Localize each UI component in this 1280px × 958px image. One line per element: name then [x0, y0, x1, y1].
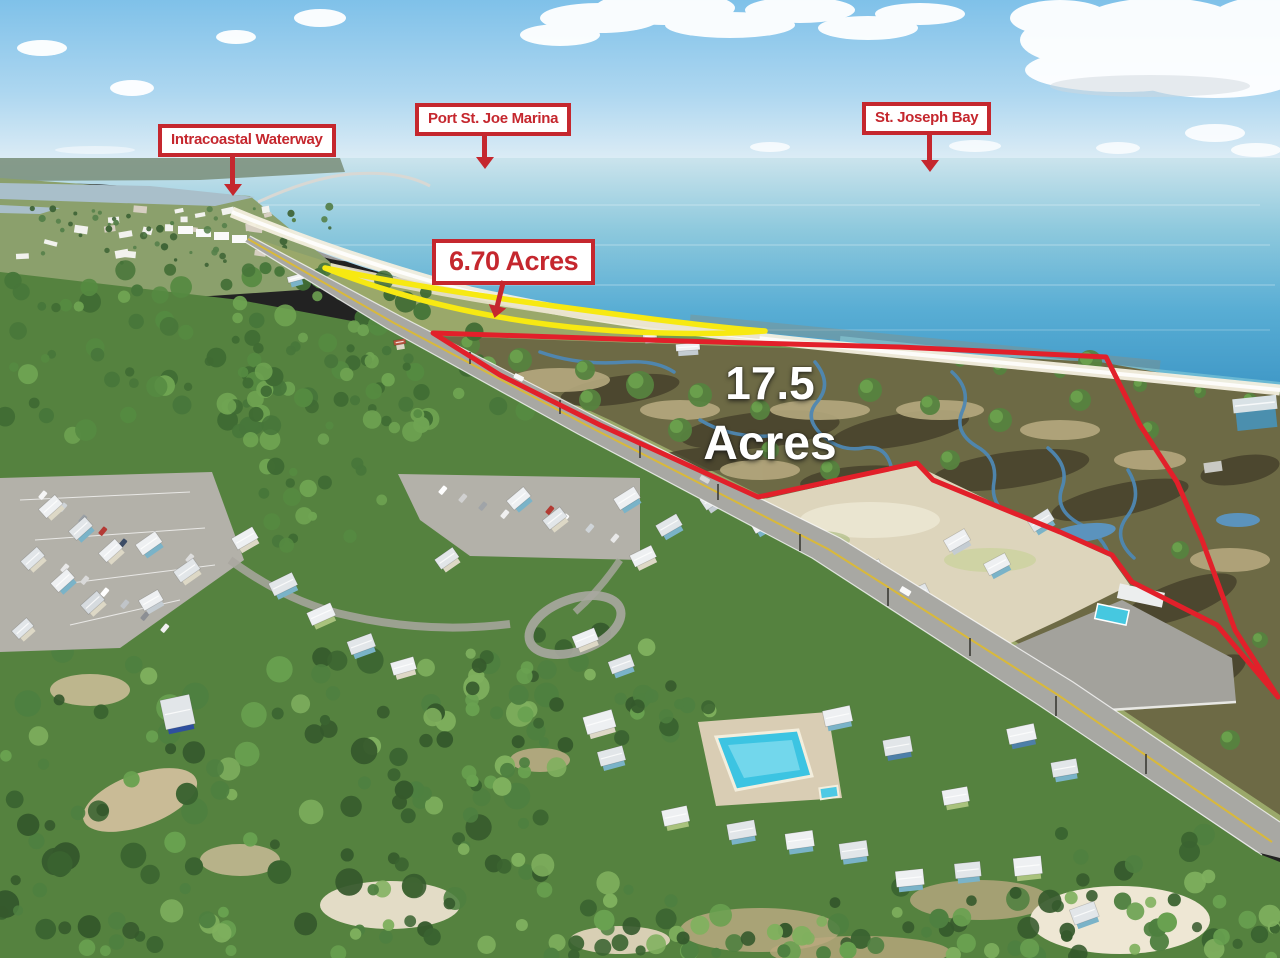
tree — [223, 259, 227, 263]
tree — [816, 916, 827, 927]
tree — [318, 476, 332, 490]
tree — [444, 898, 456, 910]
tree — [272, 708, 284, 720]
tree — [184, 383, 192, 391]
tree — [126, 214, 131, 219]
tree — [466, 649, 476, 659]
tree — [957, 934, 976, 953]
tree — [261, 415, 281, 435]
tree — [547, 757, 567, 777]
tree — [0, 750, 12, 762]
tree — [291, 694, 310, 713]
tree — [211, 249, 217, 255]
tree — [123, 771, 139, 787]
house — [839, 840, 870, 865]
tree — [366, 383, 382, 399]
tree — [664, 894, 677, 907]
tree — [312, 291, 322, 301]
tree — [232, 313, 243, 324]
tree — [343, 530, 356, 543]
tree — [118, 291, 130, 303]
tree — [465, 693, 479, 707]
tree — [509, 685, 529, 705]
tree — [376, 495, 387, 506]
tree — [1251, 926, 1268, 943]
tree — [368, 884, 379, 895]
tree — [212, 923, 231, 942]
tree — [350, 928, 361, 939]
tree — [108, 912, 126, 930]
tree — [423, 708, 441, 726]
tree — [340, 796, 361, 817]
tree — [266, 656, 292, 682]
tree — [335, 868, 363, 896]
tree — [636, 945, 646, 955]
tree — [453, 388, 464, 399]
tree — [1192, 922, 1202, 932]
tree — [267, 458, 284, 475]
tree — [516, 919, 528, 931]
tree — [58, 921, 71, 934]
tree — [113, 220, 119, 226]
tree — [596, 871, 619, 894]
tree — [953, 908, 972, 927]
tree — [1233, 939, 1243, 949]
tree — [287, 210, 294, 217]
house — [954, 861, 982, 884]
tree — [656, 908, 677, 929]
tree — [263, 513, 280, 530]
tree — [381, 373, 394, 386]
tree — [18, 364, 38, 384]
tree — [164, 264, 176, 276]
tree — [1055, 827, 1068, 840]
tree — [1157, 912, 1177, 932]
tree — [398, 397, 413, 412]
tree — [674, 699, 684, 709]
tree — [828, 913, 849, 934]
tree — [437, 731, 454, 748]
tree — [521, 661, 534, 674]
tree — [140, 865, 159, 884]
tree — [235, 742, 260, 767]
tree — [170, 221, 174, 225]
tree — [1145, 897, 1156, 908]
tree — [383, 919, 395, 931]
condo-building — [178, 226, 193, 234]
tree — [1239, 911, 1257, 929]
tree — [173, 396, 192, 415]
tree — [30, 206, 35, 211]
tree — [670, 420, 683, 433]
tree — [204, 226, 212, 234]
tree — [403, 353, 413, 363]
tree — [100, 945, 111, 956]
tree — [614, 730, 629, 745]
tree — [49, 205, 56, 212]
tree — [395, 781, 414, 800]
tree — [1125, 855, 1143, 873]
tree — [615, 693, 627, 705]
tree — [183, 741, 205, 763]
tree — [226, 945, 237, 956]
tree — [990, 410, 1003, 423]
tree — [14, 690, 41, 717]
tree — [623, 885, 633, 895]
tree — [152, 286, 169, 303]
tree — [205, 263, 209, 267]
tree — [161, 243, 168, 250]
tree — [458, 843, 470, 855]
tree — [1071, 391, 1083, 403]
tree — [701, 700, 715, 714]
tree — [388, 768, 401, 781]
tree — [389, 422, 400, 433]
tree — [500, 763, 515, 778]
tree — [623, 917, 641, 935]
tree — [325, 203, 333, 211]
tree — [96, 804, 108, 816]
tree — [289, 468, 297, 476]
tree — [104, 372, 120, 388]
tree — [108, 223, 111, 226]
tree — [645, 689, 659, 703]
tree — [109, 934, 124, 949]
spa — [819, 786, 838, 799]
tree — [325, 422, 333, 430]
tree — [902, 921, 914, 933]
tree — [133, 246, 137, 250]
house — [1013, 856, 1043, 882]
tree — [472, 658, 487, 673]
tree — [518, 706, 534, 722]
tree — [125, 367, 134, 376]
tree — [29, 398, 40, 409]
tree — [318, 433, 329, 444]
tree — [176, 783, 198, 805]
tree — [174, 258, 177, 261]
tree — [300, 480, 317, 497]
tree — [294, 388, 313, 407]
tree — [39, 215, 46, 222]
tree — [146, 936, 163, 953]
tree — [404, 915, 416, 927]
tree — [558, 737, 574, 753]
tree — [241, 702, 267, 728]
tree — [1010, 887, 1022, 899]
tree — [1259, 905, 1280, 927]
tree — [1222, 732, 1233, 743]
tree — [91, 348, 105, 362]
tree — [628, 373, 643, 388]
tree — [146, 226, 151, 231]
tree — [777, 944, 790, 957]
tree — [966, 895, 977, 906]
tree — [219, 253, 226, 260]
tree — [120, 407, 136, 423]
tree — [74, 301, 84, 311]
label-6-70-acres: 6.70 Acres — [432, 239, 595, 285]
tree — [39, 408, 54, 423]
tree — [243, 432, 258, 447]
tree — [677, 932, 690, 945]
tree — [327, 651, 347, 671]
tree — [581, 391, 593, 403]
tree — [260, 262, 272, 274]
tree — [665, 680, 676, 691]
tree — [37, 302, 46, 311]
tree — [533, 718, 544, 729]
town-building — [16, 253, 29, 259]
tree — [792, 926, 812, 946]
tree — [294, 912, 317, 935]
tree — [54, 694, 65, 705]
tree — [106, 226, 113, 233]
condo-building — [232, 235, 247, 243]
tree — [243, 378, 254, 389]
tree — [403, 363, 411, 371]
tree — [253, 343, 264, 354]
acreage-unit: Acres — [700, 420, 840, 468]
tree — [283, 488, 301, 506]
tree — [466, 682, 480, 696]
tree — [413, 409, 422, 418]
tree — [631, 699, 645, 713]
tree — [1060, 923, 1076, 939]
tree — [646, 934, 666, 954]
town-building — [165, 224, 173, 231]
tree — [1129, 944, 1140, 955]
tree — [164, 832, 185, 853]
arrow-icon — [482, 135, 487, 158]
tree — [60, 228, 65, 233]
tree — [347, 344, 355, 352]
tree — [490, 706, 503, 719]
tree — [690, 916, 709, 935]
tree — [129, 378, 139, 388]
tree — [580, 900, 597, 917]
tree — [33, 883, 48, 898]
tree — [603, 894, 617, 908]
tree — [518, 818, 529, 829]
tree — [1195, 387, 1202, 394]
tree — [267, 860, 291, 884]
tree — [41, 354, 50, 363]
tree — [218, 907, 229, 918]
tree — [146, 376, 167, 397]
tree — [255, 363, 273, 381]
tree — [725, 934, 743, 952]
tree — [146, 730, 158, 742]
town-building — [133, 205, 147, 213]
tree — [1086, 890, 1098, 902]
tree — [519, 757, 530, 768]
tree — [45, 820, 56, 831]
tree — [340, 368, 353, 381]
tree — [249, 407, 264, 422]
tree — [81, 279, 98, 296]
tree — [238, 367, 249, 378]
tree — [178, 325, 193, 340]
tree — [185, 857, 203, 875]
tree — [35, 919, 56, 940]
tree — [357, 324, 369, 336]
tree — [942, 452, 953, 463]
tree — [922, 397, 933, 408]
tree — [211, 781, 230, 800]
tree — [423, 928, 440, 945]
tree — [709, 904, 732, 927]
tree — [13, 283, 30, 300]
tree — [1020, 939, 1039, 958]
tree — [51, 303, 60, 312]
label-port-st-joe-marina: Port St. Joe Marina — [415, 103, 571, 136]
tree — [577, 362, 588, 373]
tree — [206, 759, 224, 777]
tree — [1172, 542, 1182, 552]
tree — [401, 808, 416, 823]
tree — [13, 905, 23, 915]
tree — [75, 419, 97, 441]
tree — [511, 853, 525, 867]
tree — [199, 911, 216, 928]
house — [676, 343, 701, 357]
tree — [94, 704, 109, 719]
tree — [160, 317, 179, 336]
arrow-icon — [230, 157, 235, 185]
tree — [318, 334, 337, 353]
tree — [1038, 890, 1061, 913]
tree — [299, 800, 324, 825]
tree — [249, 313, 265, 329]
tree — [29, 726, 49, 746]
tree — [419, 734, 432, 747]
tree — [78, 915, 101, 938]
tree — [274, 304, 296, 326]
tree — [921, 927, 932, 938]
arrow-icon — [224, 184, 242, 196]
tree — [1213, 895, 1227, 909]
tree — [311, 664, 330, 683]
tree — [6, 791, 24, 809]
tree — [341, 848, 354, 861]
tree — [259, 488, 270, 499]
tree — [253, 207, 256, 210]
tree — [351, 458, 363, 470]
tree — [129, 314, 144, 329]
label-17-5-acres: 17.5 Acres — [700, 360, 840, 468]
tree — [741, 931, 756, 946]
tree — [537, 660, 556, 679]
tree — [584, 669, 596, 681]
tree — [1127, 902, 1145, 920]
tree — [531, 854, 554, 877]
tree — [156, 225, 164, 233]
house — [785, 830, 816, 855]
arrow-icon — [476, 157, 494, 169]
tree — [160, 899, 183, 922]
tree — [170, 276, 192, 298]
tree — [351, 738, 378, 765]
tree — [92, 215, 98, 221]
tree — [389, 748, 407, 766]
tree — [38, 759, 49, 770]
tree — [350, 395, 360, 405]
tree — [320, 715, 330, 725]
tree — [120, 843, 146, 869]
tree — [292, 218, 296, 222]
tree — [892, 907, 903, 918]
tree — [711, 948, 721, 958]
tree — [549, 697, 564, 712]
tree — [379, 930, 393, 944]
tree — [418, 787, 432, 801]
tree — [295, 507, 312, 524]
tree — [98, 211, 102, 215]
tree — [125, 656, 143, 674]
tree — [533, 810, 549, 826]
tree — [489, 397, 507, 415]
tree — [1076, 873, 1089, 886]
tree — [493, 777, 512, 796]
tree — [214, 216, 218, 220]
tree — [68, 222, 73, 227]
tree — [1253, 633, 1262, 642]
tree — [207, 206, 213, 212]
tree — [413, 384, 429, 400]
beach-house — [1232, 395, 1279, 431]
tree — [11, 875, 21, 885]
tree — [92, 209, 96, 213]
tree — [71, 806, 86, 821]
tree — [365, 354, 379, 368]
tree — [243, 832, 257, 846]
tree — [59, 299, 72, 312]
tree — [170, 233, 177, 240]
tree — [9, 322, 27, 340]
tree — [860, 380, 873, 393]
tree — [165, 743, 176, 754]
tree — [594, 910, 615, 931]
tree — [395, 857, 409, 871]
tree — [1184, 872, 1206, 894]
tree — [207, 348, 227, 368]
tree — [1179, 841, 1200, 862]
tree — [830, 897, 841, 908]
tree — [270, 839, 280, 849]
tree — [222, 399, 237, 414]
tree — [497, 859, 512, 874]
tree — [334, 392, 349, 407]
tree — [298, 333, 308, 343]
tree — [279, 538, 294, 553]
tree — [56, 219, 61, 224]
label-st-joseph-bay: St. Joseph Bay — [862, 102, 991, 135]
tree — [1065, 891, 1078, 904]
tree — [41, 251, 45, 255]
label-intracoastal-waterway: Intracoastal Waterway — [158, 124, 336, 157]
tree — [984, 943, 999, 958]
tree — [402, 874, 427, 899]
condo-building — [214, 232, 229, 240]
tree — [242, 263, 256, 277]
town-building — [181, 217, 188, 223]
tree — [510, 350, 523, 363]
tree — [659, 709, 673, 723]
tree — [466, 775, 478, 787]
tree — [417, 659, 435, 677]
tree — [122, 922, 139, 939]
